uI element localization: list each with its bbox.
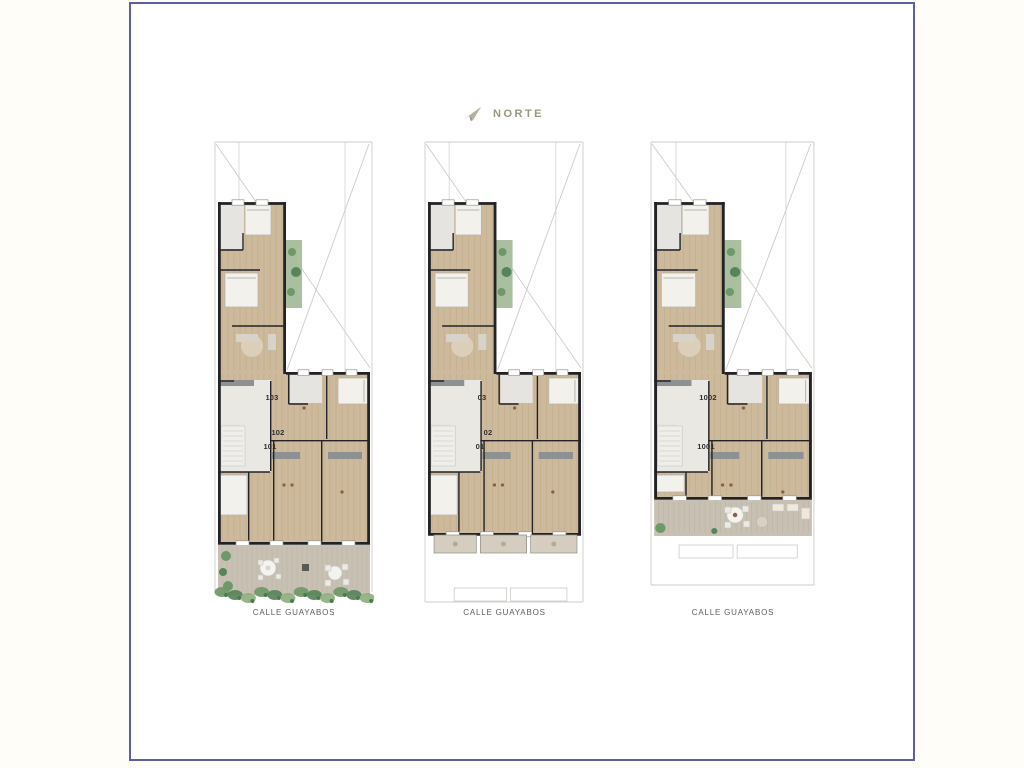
unit-number-label: 1001: [678, 442, 734, 451]
street-label: CALLE GUAYABOS: [214, 608, 374, 617]
unit-number-label: 102: [250, 428, 306, 437]
floor-plan-drawing-1: [214, 140, 374, 606]
unit-number-label: 02: [460, 428, 516, 437]
street-label: CALLE GUAYABOS: [424, 608, 585, 617]
street-label: CALLE GUAYABOS: [650, 608, 816, 617]
north-arrow-icon: [462, 104, 482, 124]
compass-label: NORTE: [493, 108, 544, 120]
unit-number-label: 101: [242, 442, 298, 451]
floor-plan-typical-level: 03 02 01 CALLE GUAYABOS: [424, 140, 585, 632]
unit-number-label: 03: [454, 393, 510, 402]
floor-plan-lower-level: 103 102 101 CALLE GUAYABOS: [214, 140, 374, 632]
unit-number-label: 1002: [680, 393, 736, 402]
floor-plan-drawing-2: [424, 140, 585, 606]
unit-number-label: 103: [244, 393, 300, 402]
compass: NORTE: [462, 104, 544, 124]
floor-plan-drawing-3: [650, 140, 816, 606]
unit-number-label: 01: [452, 442, 508, 451]
floor-plan-tenth-level: 1002 1001 CALLE GUAYABOS: [650, 140, 816, 632]
